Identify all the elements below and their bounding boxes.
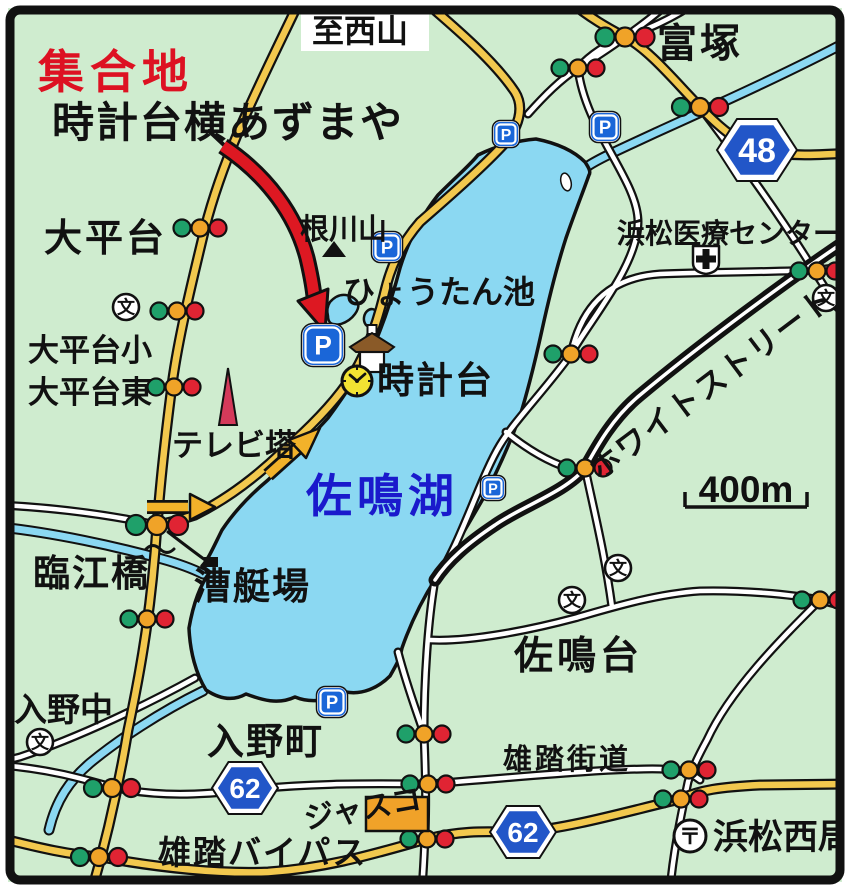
label-tomitsuka: 富塚	[657, 22, 743, 66]
parking-letter: P	[599, 117, 611, 138]
traffic-light-lamp	[434, 726, 451, 743]
label-hyotan-ike: ひょうたん池	[343, 274, 535, 310]
route-badge-62-west-number: 62	[229, 773, 260, 804]
parking-letter: P	[501, 127, 512, 144]
label-ohiradai-sho: 大平台小	[28, 333, 152, 368]
route-badge-62-east-number: 62	[507, 817, 538, 848]
traffic-light-lamp	[139, 611, 156, 628]
traffic-light-lamp	[90, 848, 108, 866]
traffic-light-icon	[121, 611, 174, 628]
traffic-light-lamp	[559, 460, 576, 477]
parking-lake-north-1: P	[493, 121, 520, 148]
parking-letter: P	[314, 331, 332, 361]
traffic-light-lamp	[812, 592, 829, 609]
label-meeting-point: 集合地	[37, 46, 194, 98]
traffic-light-lamp	[681, 762, 698, 779]
label-tokeidai: 時計台	[377, 360, 494, 401]
traffic-light-lamp	[437, 831, 454, 848]
label-tv-tower: テレビ塔	[172, 428, 297, 463]
traffic-light-icon	[655, 791, 708, 808]
traffic-light-lamp	[126, 515, 146, 535]
traffic-light-lamp	[691, 791, 708, 808]
traffic-light-lamp	[581, 346, 598, 363]
traffic-light-lamp	[71, 848, 89, 866]
map-canvas: 486262PPPPPP文文文文文〒400m集合地時計台横あずまや至西山富塚大平…	[0, 0, 850, 890]
traffic-light-icon	[552, 60, 605, 77]
school-ohiradai-sho: 文	[113, 294, 139, 320]
traffic-light-lamp	[169, 303, 186, 320]
traffic-light-lamp	[699, 762, 716, 779]
traffic-light-lamp	[552, 60, 569, 77]
traffic-light-lamp	[438, 776, 455, 793]
traffic-light-icon	[398, 726, 451, 743]
traffic-light-lamp	[103, 779, 121, 797]
traffic-light-lamp	[187, 303, 204, 320]
traffic-light-lamp	[672, 98, 690, 116]
traffic-light-lamp	[596, 28, 615, 47]
traffic-light-lamp	[174, 220, 191, 237]
traffic-light-icon	[148, 379, 201, 396]
traffic-light-lamp	[655, 791, 672, 808]
scale-bar: 400m	[685, 469, 807, 510]
school-sanarudai-1: 文	[605, 555, 631, 581]
parking-south: P	[317, 687, 348, 718]
traffic-light-lamp	[710, 98, 728, 116]
traffic-light-icon	[174, 220, 227, 237]
traffic-light-icon	[401, 831, 454, 848]
label-medical-center: 浜松医療センター	[617, 218, 841, 249]
parking-letter: P	[488, 481, 498, 497]
label-to-nishiyama: 至西山	[312, 13, 408, 49]
traffic-light-icon	[672, 98, 728, 116]
school-glyph: 文	[609, 558, 628, 579]
label-rinkobashi: 臨江橋	[33, 553, 150, 594]
parking-east-shore: P	[481, 476, 506, 501]
school-sanarudai-2: 文	[559, 587, 585, 613]
parking-letter: P	[326, 692, 338, 713]
traffic-light-lamp	[151, 303, 168, 320]
label-sanarudai: 佐鳴台	[513, 635, 643, 678]
traffic-light-lamp	[122, 779, 140, 797]
traffic-light-lamp	[616, 28, 635, 47]
traffic-light-lamp	[636, 28, 655, 47]
traffic-light-lamp	[691, 98, 709, 116]
label-irino-cho: 入野町	[207, 721, 324, 762]
traffic-light-lamp	[794, 592, 811, 609]
parking-lake-north-2: P	[590, 112, 621, 143]
clock-tower-icon	[342, 366, 372, 396]
label-yuto-kaido: 雄踏街道	[502, 742, 631, 776]
parking-meeting-point: P	[302, 324, 345, 367]
label-irino-naka: 入野中	[14, 691, 113, 728]
traffic-light-icon	[84, 779, 140, 797]
label-yuto-bypass: 雄踏バイパス	[158, 834, 367, 871]
hospital-icon	[693, 246, 719, 274]
clock-center	[355, 379, 359, 383]
label-ohiradai-higashi: 大平台東	[28, 375, 152, 410]
label-meeting-place: 時計台横あずまや	[52, 99, 404, 146]
traffic-light-lamp	[545, 346, 562, 363]
traffic-light-icon	[126, 515, 188, 535]
traffic-light-lamp	[588, 60, 605, 77]
post-office-icon: 〒	[674, 820, 706, 852]
traffic-light-lamp	[157, 611, 174, 628]
traffic-light-lamp	[570, 60, 587, 77]
traffic-light-lamp	[563, 346, 580, 363]
map-screenshot: 486262PPPPPP文文文文文〒400m集合地時計台横あずまや至西山富塚大平…	[0, 0, 850, 890]
label-ohiradai: 大平台	[44, 218, 167, 260]
traffic-light-lamp	[184, 379, 201, 396]
traffic-light-lamp	[168, 515, 188, 535]
traffic-light-icon	[151, 303, 204, 320]
traffic-light-lamp	[420, 776, 437, 793]
label-sanaruko: 佐鳴湖	[305, 470, 459, 522]
traffic-light-lamp	[419, 831, 436, 848]
traffic-light-lamp	[809, 263, 826, 280]
hospital-icon-cross-h	[696, 256, 716, 263]
traffic-light-lamp	[210, 220, 227, 237]
route-badge-48-number: 48	[738, 132, 776, 170]
label-hamamatsu-nishi: 浜松西局	[713, 818, 850, 857]
school-glyph: 文	[563, 590, 582, 611]
traffic-light-lamp	[147, 515, 167, 535]
traffic-light-lamp	[673, 791, 690, 808]
traffic-light-lamp	[121, 611, 138, 628]
traffic-light-icon	[596, 28, 655, 47]
school-irino-naka: 文	[27, 729, 53, 755]
traffic-light-icon	[71, 848, 127, 866]
traffic-light-lamp	[192, 220, 209, 237]
school-glyph: 文	[117, 297, 136, 318]
traffic-light-lamp	[84, 779, 102, 797]
traffic-light-lamp	[166, 379, 183, 396]
label-soteijo: 漕艇場	[194, 566, 311, 607]
traffic-light-icon	[663, 762, 716, 779]
scale-label: 400m	[699, 469, 794, 510]
traffic-light-icon	[545, 346, 598, 363]
traffic-light-lamp	[663, 762, 680, 779]
post-glyph: 〒	[679, 824, 701, 849]
traffic-light-lamp	[416, 726, 433, 743]
traffic-light-lamp	[401, 831, 418, 848]
traffic-light-lamp	[398, 726, 415, 743]
traffic-light-lamp	[109, 848, 127, 866]
label-negawayama: 根川山	[300, 213, 387, 246]
school-glyph: 文	[31, 732, 50, 753]
traffic-light-lamp	[791, 263, 808, 280]
